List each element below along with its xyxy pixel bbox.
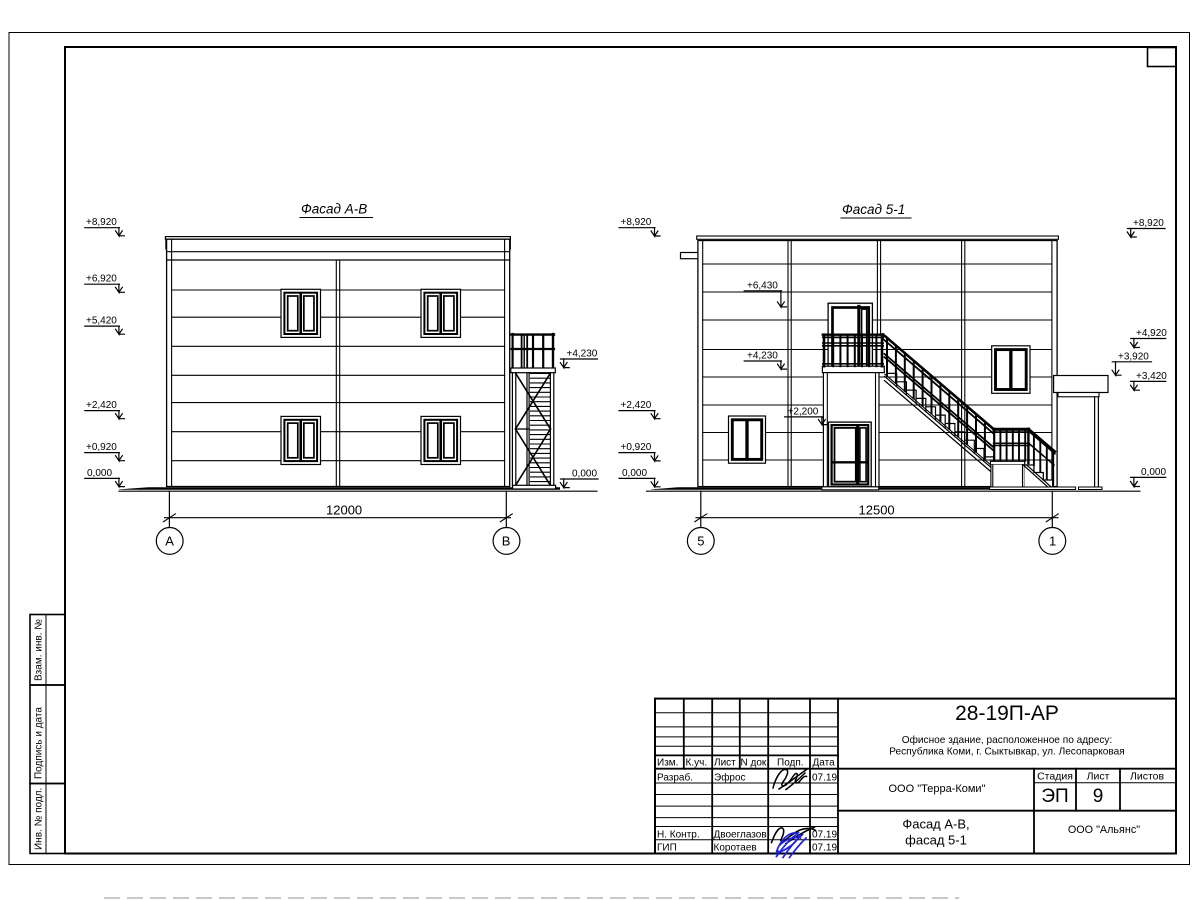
svg-text:В: В [502,534,511,549]
svg-text:+4,230: +4,230 [567,349,598,360]
svg-text:12500: 12500 [859,502,895,517]
svg-text:Подп.: Подп. [777,758,804,769]
svg-text:+0,920: +0,920 [86,442,117,453]
svg-text:+6,430: +6,430 [747,280,778,291]
svg-text:+2,420: +2,420 [86,400,117,411]
svg-text:Разраб.: Разраб. [657,772,693,784]
svg-text:9: 9 [1093,786,1104,807]
svg-text:N док.: N док. [741,758,770,769]
svg-text:Коротаев: Коротаев [714,842,757,853]
svg-text:0,000: 0,000 [1141,467,1166,478]
svg-text:+8,920: +8,920 [621,217,652,228]
svg-text:А: А [165,534,174,549]
svg-text:1: 1 [1049,534,1056,549]
svg-text:5: 5 [697,534,704,549]
svg-text:Изм.: Изм. [657,758,678,769]
svg-text:ООО "Терра-Коми": ООО "Терра-Коми" [888,783,985,795]
svg-text:12000: 12000 [326,502,362,517]
svg-text:Фасад А-В: Фасад А-В [301,202,367,217]
svg-text:Двоеглазов: Двоеглазов [714,830,767,841]
svg-text:Фасад 5-1: Фасад 5-1 [842,202,905,217]
svg-text:0,000: 0,000 [622,468,647,479]
svg-text:Фасад А-В,: Фасад А-В, [902,817,969,832]
svg-text:+8,920: +8,920 [86,217,117,228]
svg-text:ГИП: ГИП [657,842,677,853]
svg-text:+2,420: +2,420 [621,400,652,411]
svg-text:0,000: 0,000 [87,468,112,479]
svg-text:+3,920: +3,920 [1118,351,1149,362]
svg-text:+2,200: +2,200 [788,406,819,417]
svg-text:Офисное здание, расположенное: Офисное здание, расположенное по адресу: [902,734,1113,746]
svg-text:28-19П-АР: 28-19П-АР [955,702,1059,725]
svg-text:+0,920: +0,920 [621,442,652,453]
svg-text:Инв. № подл.: Инв. № подл. [34,788,45,850]
svg-text:ЭП: ЭП [1041,786,1068,807]
svg-text:ООО "Альянс": ООО "Альянс" [1068,824,1140,836]
svg-text:Дата: Дата [813,758,836,769]
svg-text:фасад 5-1: фасад 5-1 [905,833,967,848]
svg-text:+8,920: +8,920 [1133,218,1164,229]
svg-text:Взам. инв. №: Взам. инв. № [34,619,45,681]
svg-text:Подпись и дата: Подпись и дата [34,707,45,779]
svg-text:Республика Коми, г. Сыктывкар,: Республика Коми, г. Сыктывкар, ул. Лесоп… [889,746,1125,758]
svg-text:+5,420: +5,420 [86,316,117,327]
svg-text:Листов: Листов [1130,771,1165,783]
svg-text:+3,420: +3,420 [1136,371,1167,382]
svg-text:07.19: 07.19 [812,842,837,853]
svg-text:0,000: 0,000 [572,468,597,479]
svg-text:Н. Контр.: Н. Контр. [657,830,700,841]
svg-text:+4,230: +4,230 [747,351,778,362]
svg-text:Лист: Лист [1087,771,1110,783]
svg-text:07.19: 07.19 [812,773,837,784]
svg-text:Стадия: Стадия [1037,771,1073,783]
svg-text:+6,920: +6,920 [86,274,117,285]
svg-text:Лист: Лист [714,758,736,769]
svg-text:+4,920: +4,920 [1136,328,1167,339]
svg-text:Эфрос: Эфрос [714,772,746,784]
svg-text:К.уч.: К.уч. [686,758,708,769]
